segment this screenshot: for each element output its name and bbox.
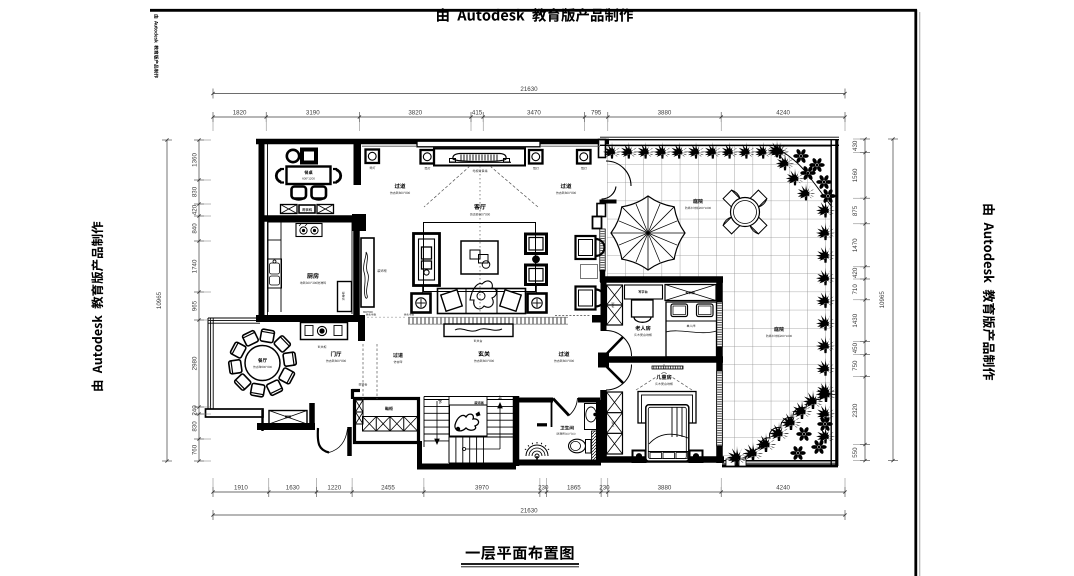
svg-text:420: 420 xyxy=(192,204,199,215)
svg-text:550: 550 xyxy=(852,447,859,458)
svg-text:230: 230 xyxy=(538,485,549,492)
svg-text:600*1200: 600*1200 xyxy=(302,177,315,181)
svg-text:4240: 4240 xyxy=(776,485,790,492)
svg-text:1865: 1865 xyxy=(567,485,581,492)
svg-text:450: 450 xyxy=(852,342,859,353)
svg-text:1630: 1630 xyxy=(286,485,300,492)
svg-text:10965: 10965 xyxy=(879,291,886,309)
svg-text:3470: 3470 xyxy=(527,110,541,117)
svg-text:3970: 3970 xyxy=(475,485,489,492)
svg-text:415: 415 xyxy=(472,110,483,117)
svg-text:240: 240 xyxy=(192,405,199,416)
svg-text:3820: 3820 xyxy=(408,110,422,117)
svg-text:830: 830 xyxy=(192,186,199,197)
svg-text:830: 830 xyxy=(192,421,199,432)
svg-text:760: 760 xyxy=(192,444,199,455)
svg-text:1560: 1560 xyxy=(852,168,859,182)
svg-text:2980: 2980 xyxy=(192,356,199,370)
svg-text:1820: 1820 xyxy=(233,110,247,117)
svg-text:1470: 1470 xyxy=(852,238,859,252)
svg-text:3880: 3880 xyxy=(658,110,672,117)
svg-text:430: 430 xyxy=(852,140,859,151)
svg-text:3190: 3190 xyxy=(306,110,320,117)
svg-text:795: 795 xyxy=(591,110,602,117)
svg-text:1740: 1740 xyxy=(192,259,199,273)
svg-text:4240: 4240 xyxy=(776,110,790,117)
svg-text:750: 750 xyxy=(852,360,859,371)
svg-text:1360: 1360 xyxy=(192,153,199,167)
svg-text:10965: 10965 xyxy=(156,291,163,309)
svg-text:800*600: 800*600 xyxy=(363,310,373,314)
svg-text:1910: 1910 xyxy=(234,485,248,492)
svg-text:965: 965 xyxy=(192,300,199,311)
svg-text:3880: 3880 xyxy=(658,485,672,492)
svg-text:875: 875 xyxy=(852,205,859,216)
svg-text:840: 840 xyxy=(192,223,199,234)
svg-text:2455: 2455 xyxy=(381,485,395,492)
svg-text:1220: 1220 xyxy=(327,485,341,492)
svg-text:21630: 21630 xyxy=(520,508,538,515)
svg-text:21630: 21630 xyxy=(520,86,538,93)
svg-text:1430: 1430 xyxy=(852,313,859,327)
svg-text:230: 230 xyxy=(599,485,610,492)
svg-text:420: 420 xyxy=(852,267,859,278)
svg-text:2320: 2320 xyxy=(852,403,859,417)
svg-text:710: 710 xyxy=(852,284,859,295)
